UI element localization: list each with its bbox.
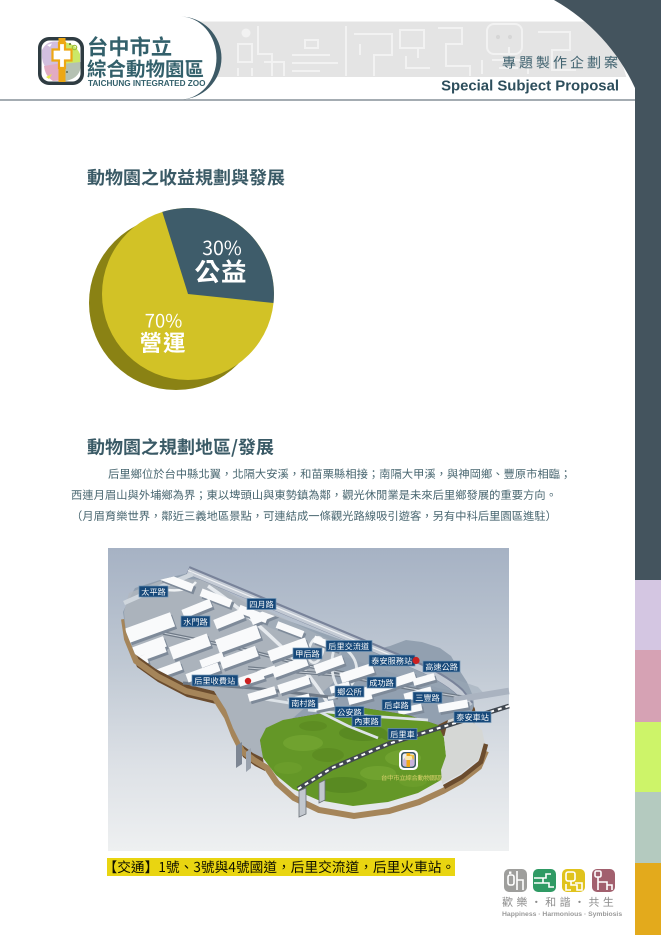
svg-text:Special Subject Proposal: Special Subject Proposal <box>441 79 619 95</box>
svg-text:Happiness · Harmonious · Symbi: Happiness · Harmonious · Symbiosis <box>502 911 622 918</box>
svg-text:TAICHUNG INTEGRATED ZOO: TAICHUNG INTEGRATED ZOO <box>88 79 206 88</box>
